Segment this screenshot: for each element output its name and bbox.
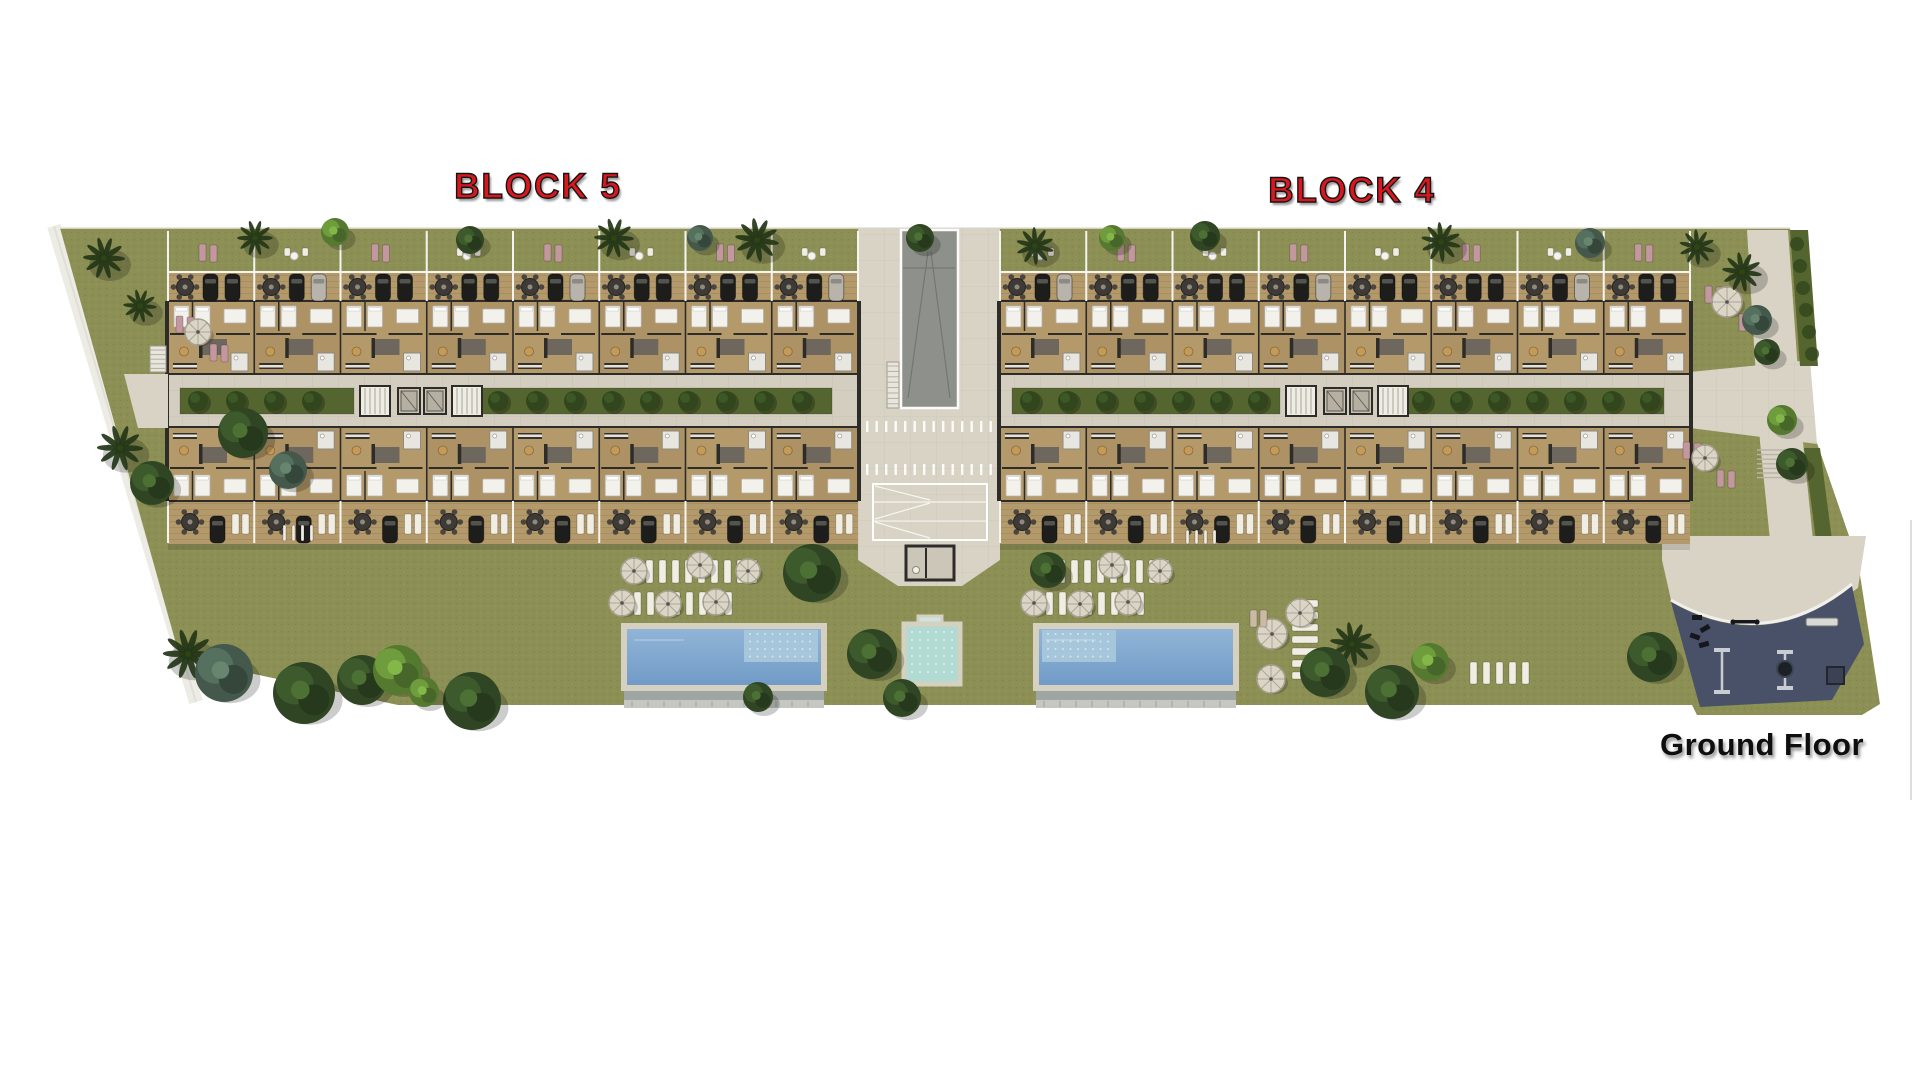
- apartment-unit: [513, 301, 599, 374]
- apartment-unit: [1000, 301, 1086, 374]
- apartment-unit: [1000, 427, 1086, 501]
- apartment-unit: [772, 427, 858, 501]
- apartments-row-upper: [168, 300, 858, 375]
- apartment-unit: [1431, 301, 1517, 374]
- apartment-unit: [599, 427, 685, 501]
- apartment-unit: [341, 301, 427, 374]
- apartment-unit: [1259, 301, 1345, 374]
- block-5-building: [165, 231, 861, 550]
- block-5-label: BLOCK 5: [454, 167, 622, 207]
- swimming-pool: [1036, 626, 1236, 708]
- central-driveway-plaza: [858, 228, 1000, 586]
- kids-pool: [904, 616, 960, 684]
- site-plan-rendering: [0, 0, 1920, 1080]
- apartment-unit: [1604, 427, 1690, 501]
- site-plan-canvas: BLOCK 5 BLOCK 4 Ground Floor: [0, 0, 1920, 1080]
- apartment-unit: [599, 301, 685, 374]
- apartment-unit: [513, 427, 599, 501]
- apartments-row-lower: [1000, 426, 1690, 502]
- block-4-label: BLOCK 4: [1268, 171, 1436, 211]
- apartment-unit: [1431, 427, 1517, 501]
- apartment-unit: [427, 427, 513, 501]
- apartment-unit: [1086, 427, 1172, 501]
- corridor-planter: [480, 388, 832, 414]
- corridor-planter: [1404, 388, 1664, 414]
- technical-building: [906, 546, 954, 580]
- ground-floor-label: Ground Floor: [1660, 727, 1864, 763]
- apartment-unit: [1173, 427, 1259, 501]
- apartment-unit: [1604, 301, 1690, 374]
- apartment-unit: [1518, 427, 1604, 501]
- apartment-unit: [1518, 301, 1604, 374]
- apartments-row-upper: [1000, 300, 1690, 375]
- apartment-unit: [1173, 301, 1259, 374]
- corridor-planter: [180, 388, 354, 414]
- apartment-unit: [1086, 301, 1172, 374]
- block-4-building: [997, 231, 1693, 550]
- entrance-ramp: [901, 230, 958, 408]
- apartment-unit: [254, 301, 340, 374]
- apartment-unit: [686, 301, 772, 374]
- swimming-pool: [624, 626, 824, 708]
- stairs-and-elevators: [1286, 386, 1408, 416]
- plaza-stairs: [887, 362, 899, 408]
- apartment-unit: [1259, 427, 1345, 501]
- apartment-unit: [1345, 301, 1431, 374]
- apartment-unit: [427, 301, 513, 374]
- corridor-planter: [1012, 388, 1280, 414]
- stairs-and-elevators: [360, 386, 482, 416]
- apartment-unit: [686, 427, 772, 501]
- apartment-unit: [1345, 427, 1431, 501]
- apartment-unit: [341, 427, 427, 501]
- apartment-unit: [772, 301, 858, 374]
